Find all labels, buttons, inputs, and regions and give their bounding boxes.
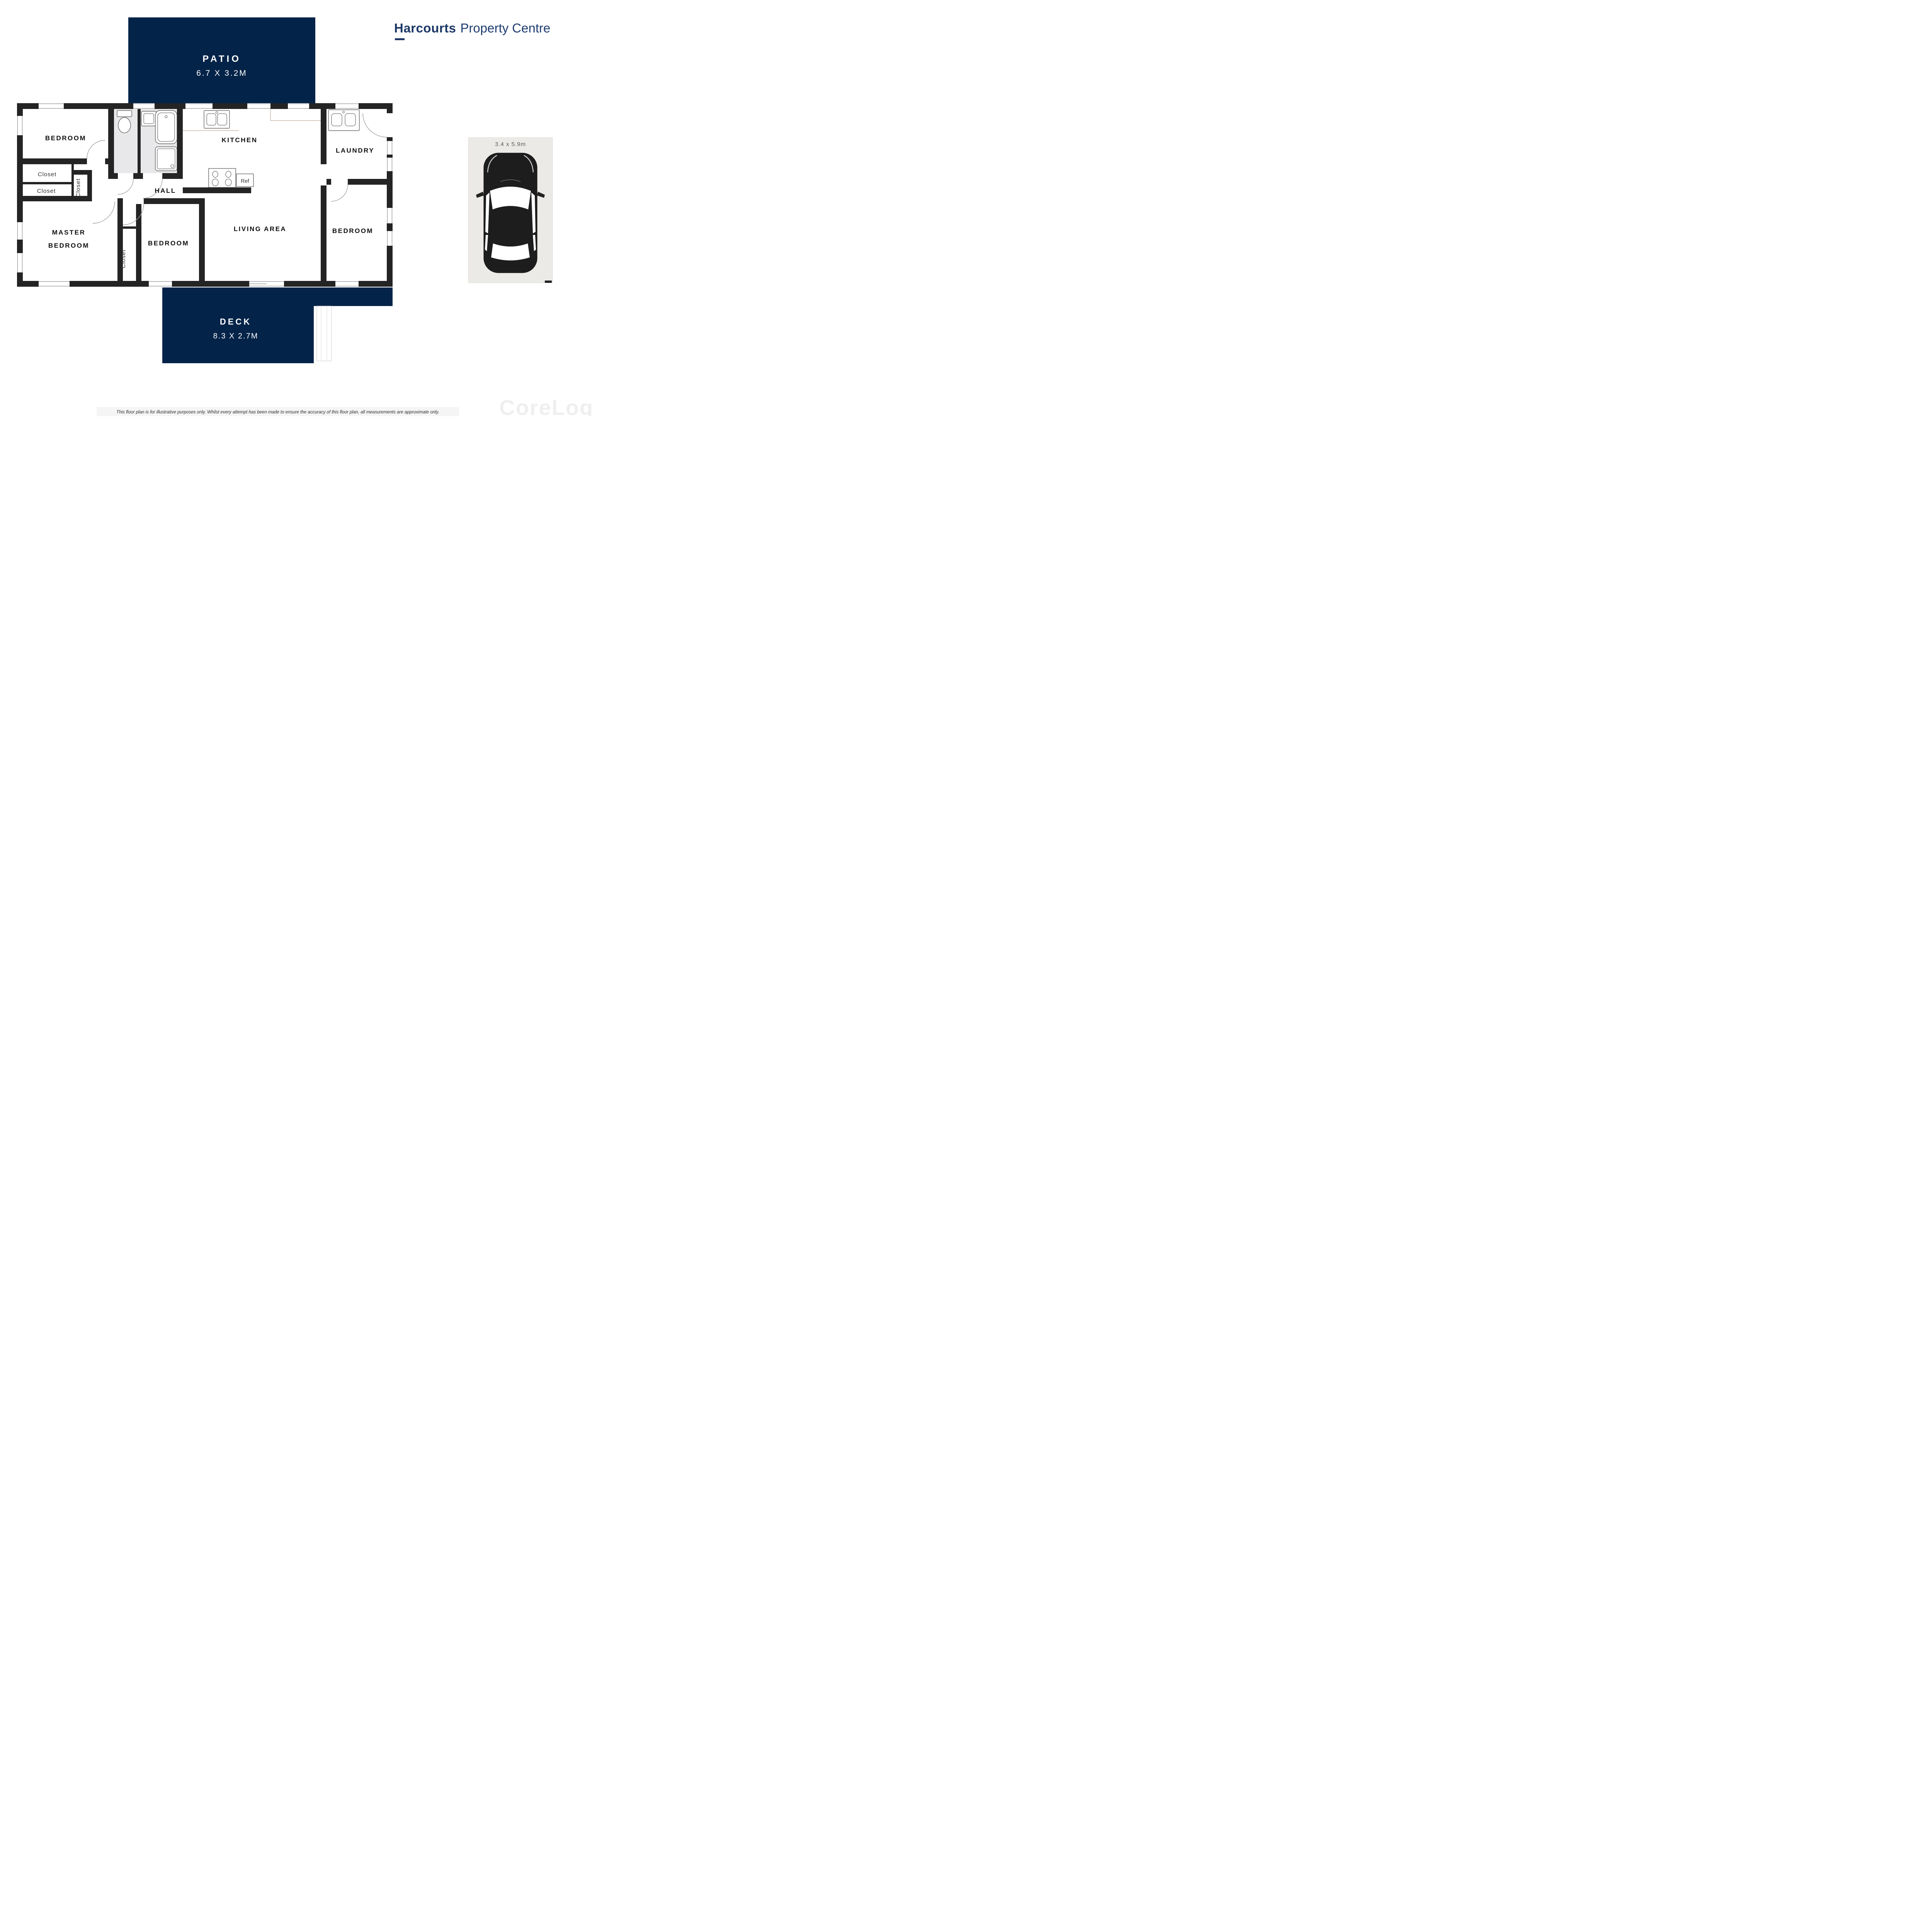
carport-mark [545,281,552,283]
window [387,141,393,155]
floor-plan-canvas: PATIO 6.7 X 3.2M [0,0,592,416]
car-top-view-icon [476,153,545,273]
kitchen-sink-icon [204,111,230,128]
closet-label-2: Closet [37,188,56,194]
room-label-bedroom-top-left: BEDROOM [45,134,86,142]
window [185,103,213,109]
window [17,116,23,135]
window [133,103,155,109]
deck-stairs [317,306,332,361]
floor-plan-page: PATIO 6.7 X 3.2M [0,0,592,416]
disclaimer-line-1: This floor plan is for illustrative purp… [97,409,459,416]
patio-dims: 6.7 X 3.2M [196,69,247,78]
shower-icon [155,147,177,171]
window [288,103,309,109]
window [247,103,270,109]
door-opening [387,113,393,137]
window [17,253,23,272]
window [387,158,393,171]
window [17,222,23,240]
room-label-master-line2: BEDROOM [48,242,89,249]
room-label-bedroom-mid: BEDROOM [148,240,189,247]
closet-label-mid-vertical: Closet [120,250,127,269]
toilet-tank-icon [117,111,132,117]
wc-fixtures [117,111,132,133]
carport-dims: 3.4 x 5.9m [495,141,526,148]
closet-label-vertical: Closet [75,179,82,197]
window [335,103,359,109]
room-label-master-line1: MASTER [52,229,86,236]
deck-dims: 8.3 X 2.7M [213,332,259,340]
window [335,281,359,287]
window [387,231,393,246]
room-label-living: LIVING AREA [234,225,286,233]
room-label-laundry: LAUNDRY [336,147,374,154]
brand-suffix: Property Centre [460,21,550,35]
window [39,103,64,109]
room-label-bedroom-right: BEDROOM [332,227,373,235]
patio-area: PATIO 6.7 X 3.2M [128,17,315,103]
carport-area: 3.4 x 5.9m [468,138,553,283]
window [39,281,70,287]
fridge-label: Ref [241,178,249,184]
laundry-fixtures [328,110,359,131]
corelogic-watermark: CoreLogic [499,395,592,416]
room-label-hall: HALL [155,187,176,194]
closet-label-1: Closet [38,171,57,178]
patio-label: PATIO [202,54,241,64]
room-label-kitchen: KITCHEN [221,136,257,144]
brand-logo: HarcourtsProperty Centre [394,21,550,36]
disclaimer: This floor plan is for illustrative purp… [97,407,459,416]
logo-underline [395,38,405,40]
deck-area: DECK 8.3 X 2.7M [162,287,393,363]
window [149,281,172,287]
brand-name: Harcourts [394,21,456,35]
deck-label: DECK [220,317,252,327]
window [387,208,393,223]
toilet-icon [118,117,131,133]
